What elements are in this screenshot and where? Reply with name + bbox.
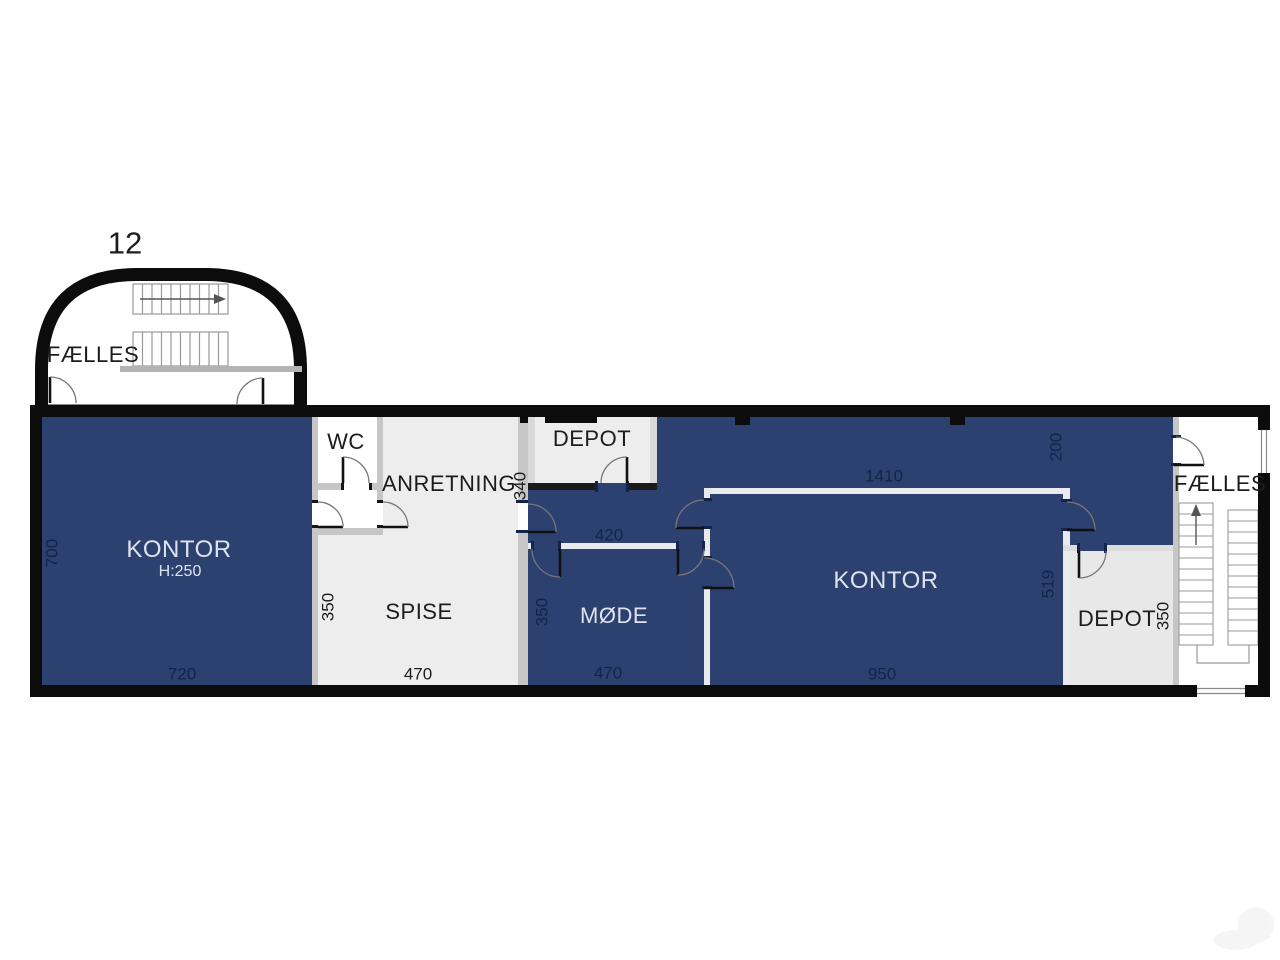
window-right-wall xyxy=(1258,430,1270,473)
dim-kontor-left-height: 700 xyxy=(44,539,61,567)
dim-moede-height: 350 xyxy=(534,598,551,626)
room-label-kontor-right: KONTOR xyxy=(833,569,938,593)
room-label-kontor-left: KONTOR xyxy=(126,538,231,562)
room-label-depot-top: DEPOT xyxy=(553,428,631,450)
dim-kontor-right-top: 1410 xyxy=(865,468,903,485)
room-label-wc: WC xyxy=(327,431,365,453)
room-label-spise: SPISE xyxy=(385,601,452,623)
room-label-faelles-right: FÆLLES xyxy=(1174,473,1266,495)
dim-corridor-width: 420 xyxy=(595,527,623,544)
dim-kontor-right-width: 950 xyxy=(868,666,896,683)
floor-plan: 12 FÆLLES KONTOR H:250 700 720 WC ANRETN… xyxy=(0,0,1280,960)
annex-landing-edge xyxy=(120,366,302,372)
dim-spise-height: 350 xyxy=(320,593,337,621)
floor-plan-canvas xyxy=(0,0,1280,960)
room-label-depot-right: DEPOT xyxy=(1078,608,1156,630)
ceiling-height-note: H:250 xyxy=(159,564,202,580)
dim-anretning-height: 340 xyxy=(512,472,529,500)
watermark-logo xyxy=(1214,907,1274,950)
window-bottom-wall xyxy=(1197,685,1245,697)
room-label-annex-faelles: FÆLLES xyxy=(47,344,139,366)
floor-number-label: 12 xyxy=(108,228,142,259)
room-label-anretning: ANRETNING xyxy=(382,473,516,495)
room-label-moede: MØDE xyxy=(580,605,648,627)
dim-kontor-right-corner: 200 xyxy=(1048,433,1065,461)
dim-spise-width: 470 xyxy=(404,666,432,683)
dim-kontor-right-side: 519 xyxy=(1040,570,1057,598)
dim-moede-width: 470 xyxy=(594,665,622,682)
dim-kontor-left-width: 720 xyxy=(168,666,196,683)
dim-depot-right-height: 350 xyxy=(1155,602,1172,630)
